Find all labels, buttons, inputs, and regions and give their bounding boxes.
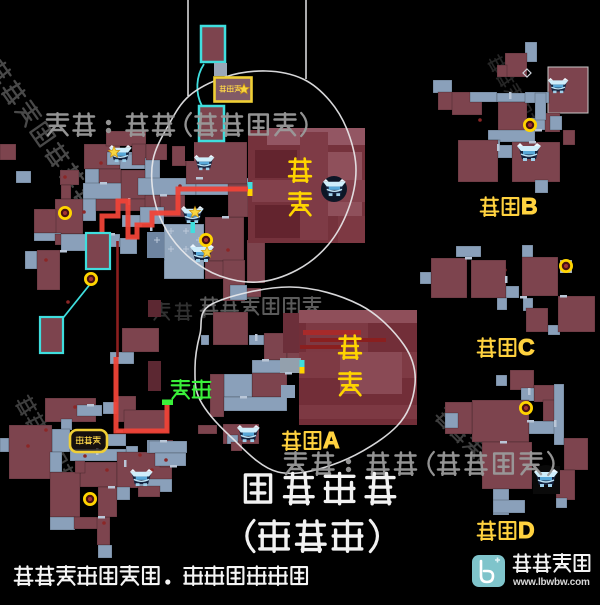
svg-text:C: C	[518, 334, 535, 360]
svg-text:B: B	[521, 193, 538, 219]
svg-text:A: A	[323, 427, 340, 453]
svg-text:www.lbwbw.com: www.lbwbw.com	[512, 577, 590, 588]
svg-text:D: D	[518, 517, 535, 543]
